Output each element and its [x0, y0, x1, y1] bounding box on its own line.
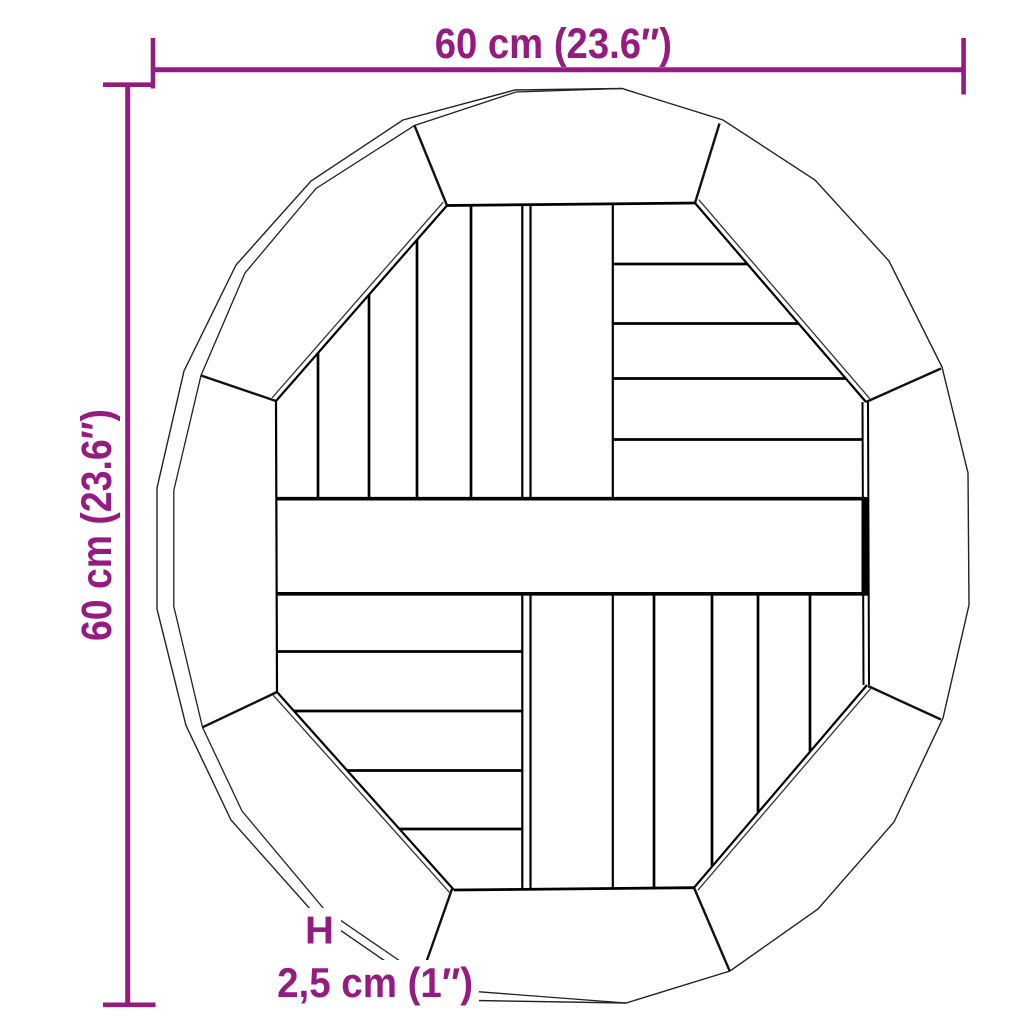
svg-text:H: H [305, 909, 334, 953]
svg-text:2,5 cm (1″): 2,5 cm (1″) [277, 960, 473, 1006]
svg-text:60 cm (23.6″): 60 cm (23.6″) [435, 20, 672, 67]
svg-text:60 cm (23.6″): 60 cm (23.6″) [74, 409, 121, 641]
